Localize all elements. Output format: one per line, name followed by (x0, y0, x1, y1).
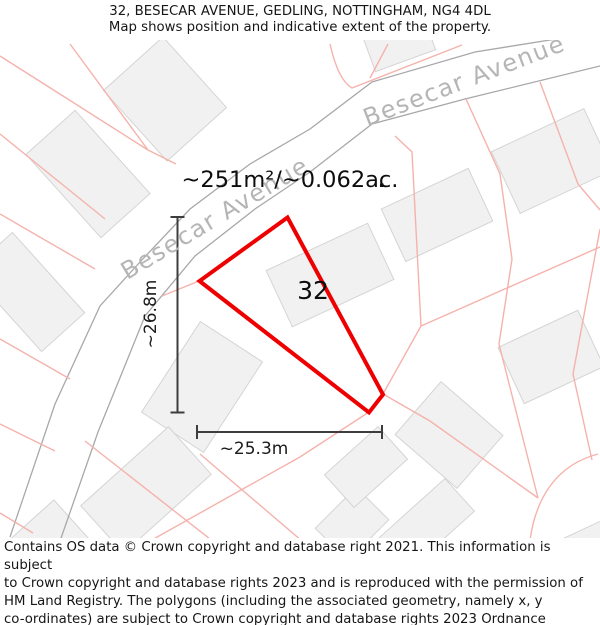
building (498, 310, 600, 403)
width-dimension-label: ~25.3m (220, 439, 289, 459)
parcel-line (383, 326, 421, 394)
copyright-line: HM Land Registry. The polygons (includin… (4, 593, 590, 611)
building (266, 223, 394, 327)
copyright-line: to Crown copyright and database rights 2… (4, 575, 590, 593)
building (562, 509, 600, 538)
page-title: 32, BESECAR AVENUE, GEDLING, NOTTINGHAM,… (0, 4, 600, 20)
copyright-notice: Contains OS data © Crown copyright and d… (0, 538, 600, 625)
parcel-line (529, 454, 598, 538)
building (0, 232, 85, 351)
page-subtitle: Map shows position and indicative extent… (0, 20, 600, 36)
plot-number-label: 32 (297, 276, 329, 305)
map-header: 32, BESECAR AVENUE, GEDLING, NOTTINGHAM,… (0, 0, 600, 40)
copyright-line: co-ordinates) are subject to Crown copyr… (4, 611, 590, 625)
map-canvas: Besecar Avenue Besecar Avenue ~251m²/~0.… (0, 40, 600, 538)
building (325, 427, 408, 508)
height-dimension-label: ~26.8m (141, 280, 161, 349)
plot-area-label: ~251m²/~0.062ac. (182, 167, 399, 193)
map-container: Besecar Avenue Besecar Avenue ~251m²/~0.… (0, 40, 600, 538)
building (26, 110, 150, 237)
building (491, 109, 600, 214)
building (374, 479, 475, 538)
parcel-line (0, 339, 70, 379)
building (103, 40, 226, 161)
parcel-line (200, 454, 302, 538)
copyright-line: Contains OS data © Crown copyright and d… (4, 539, 590, 575)
